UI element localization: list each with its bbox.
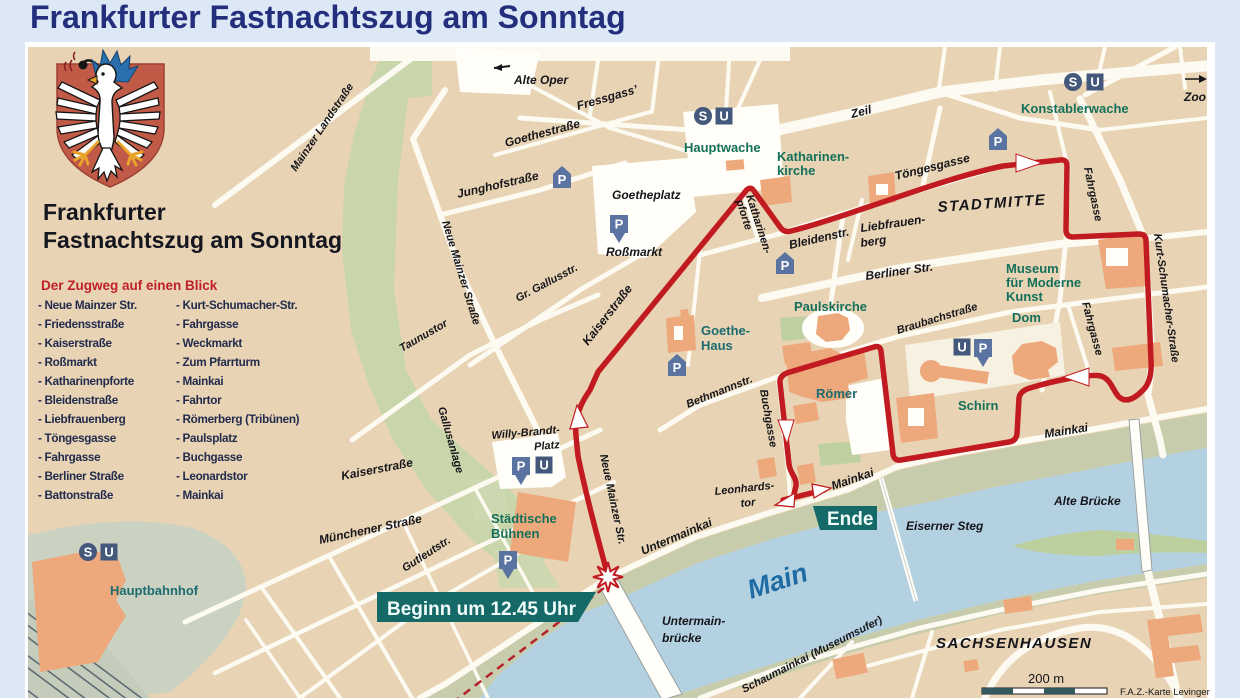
svg-text:- Römerberg (Tribünen): - Römerberg (Tribünen)	[176, 413, 300, 426]
svg-text:- Berliner Straße: - Berliner Straße	[38, 470, 125, 483]
svg-text:- Buchgasse: - Buchgasse	[176, 451, 243, 464]
svg-text:Alte Oper: Alte Oper	[513, 73, 569, 87]
svg-text:Alte Brücke: Alte Brücke	[1053, 494, 1121, 508]
svg-text:Hauptwache: Hauptwache	[684, 140, 761, 155]
svg-text:- Kaiserstraße: - Kaiserstraße	[38, 337, 113, 350]
svg-text:Der Zugweg auf einen Blick: Der Zugweg auf einen Blick	[41, 278, 218, 293]
svg-text:U: U	[957, 340, 966, 355]
svg-text:S: S	[84, 545, 93, 560]
svg-text:Frankfurter Fastnachtszug am S: Frankfurter Fastnachtszug am Sonntag	[30, 0, 626, 35]
svg-text:- Fahrtor: - Fahrtor	[176, 394, 222, 407]
svg-text:- Weckmarkt: - Weckmarkt	[176, 337, 242, 350]
svg-text:- Zum Pfarrturm: - Zum Pfarrturm	[176, 356, 260, 369]
svg-text:P: P	[781, 258, 790, 273]
svg-text:Paulskirche: Paulskirche	[794, 299, 867, 314]
svg-text:- Fahrgasse: - Fahrgasse	[176, 318, 239, 331]
svg-text:Roßmarkt: Roßmarkt	[606, 245, 663, 259]
svg-text:Fastnachtszug am Sonntag: Fastnachtszug am Sonntag	[43, 227, 342, 253]
svg-text:Dom: Dom	[1012, 310, 1041, 325]
svg-text:Ende: Ende	[827, 509, 873, 530]
svg-text:U: U	[104, 545, 113, 560]
svg-text:S: S	[1069, 75, 1078, 90]
svg-text:Zoo: Zoo	[1183, 90, 1206, 104]
svg-text:- Liebfrauenberg: - Liebfrauenberg	[38, 413, 126, 426]
svg-text:Katharinen-: Katharinen-	[777, 149, 849, 164]
svg-text:F.A.Z.-Karte Levinger: F.A.Z.-Karte Levinger	[1120, 687, 1210, 698]
svg-text:- Fahrgasse: - Fahrgasse	[38, 451, 101, 464]
svg-text:Museum: Museum	[1006, 261, 1059, 276]
svg-text:- Roßmarkt: - Roßmarkt	[38, 356, 97, 369]
svg-text:P: P	[673, 360, 682, 375]
svg-text:U: U	[1090, 75, 1099, 90]
svg-text:Konstablerwache: Konstablerwache	[1021, 101, 1129, 116]
svg-text:kirche: kirche	[777, 163, 815, 178]
svg-text:Beginn um 12.45 Uhr: Beginn um 12.45 Uhr	[387, 599, 577, 620]
svg-text:Kunst: Kunst	[1006, 289, 1044, 304]
svg-text:- Töngesgasse: - Töngesgasse	[38, 432, 117, 445]
svg-text:P: P	[517, 459, 526, 474]
svg-text:brücke: brücke	[662, 631, 702, 645]
svg-text:für Moderne: für Moderne	[1006, 275, 1081, 290]
svg-text:Untermain-: Untermain-	[662, 614, 725, 628]
svg-text:P: P	[558, 172, 567, 187]
svg-text:P: P	[979, 341, 988, 356]
svg-text:Städtische: Städtische	[491, 511, 557, 526]
svg-text:- Mainkai: - Mainkai	[176, 489, 223, 502]
svg-text:Eiserner Steg: Eiserner Steg	[906, 519, 984, 533]
svg-text:P: P	[615, 217, 624, 232]
svg-text:P: P	[504, 553, 513, 568]
svg-text:Haus: Haus	[701, 338, 733, 353]
svg-text:- Friedensstraße: - Friedensstraße	[38, 318, 125, 331]
svg-text:- Bleidenstraße: - Bleidenstraße	[38, 394, 119, 407]
svg-text:Bühnen: Bühnen	[491, 526, 539, 541]
svg-text:Schirn: Schirn	[958, 398, 999, 413]
svg-text:Römer: Römer	[816, 386, 857, 401]
svg-text:Goetheplatz: Goetheplatz	[612, 188, 681, 202]
svg-text:200 m: 200 m	[1028, 671, 1064, 686]
svg-text:- Battonstraße: - Battonstraße	[38, 489, 114, 502]
svg-text:- Paulsplatz: - Paulsplatz	[176, 432, 238, 445]
svg-text:SACHSENHAUSEN: SACHSENHAUSEN	[936, 635, 1092, 652]
svg-text:- Leonardstor: - Leonardstor	[176, 470, 248, 483]
svg-text:P: P	[994, 134, 1003, 149]
svg-text:- Neue Mainzer Str.: - Neue Mainzer Str.	[38, 299, 137, 312]
svg-text:U: U	[719, 109, 728, 124]
svg-text:Goethe-: Goethe-	[701, 323, 750, 338]
svg-text:- Katharinenpforte: - Katharinenpforte	[38, 375, 135, 388]
svg-text:tor: tor	[740, 496, 757, 510]
svg-text:- Mainkai: - Mainkai	[176, 375, 223, 388]
svg-text:Platz: Platz	[534, 439, 561, 453]
svg-text:- Kurt-Schumacher-Str.: - Kurt-Schumacher-Str.	[176, 299, 297, 312]
svg-text:Frankfurter: Frankfurter	[43, 199, 166, 225]
svg-text:S: S	[699, 109, 708, 124]
svg-text:U: U	[539, 458, 548, 473]
svg-text:Hauptbahnhof: Hauptbahnhof	[110, 583, 199, 598]
